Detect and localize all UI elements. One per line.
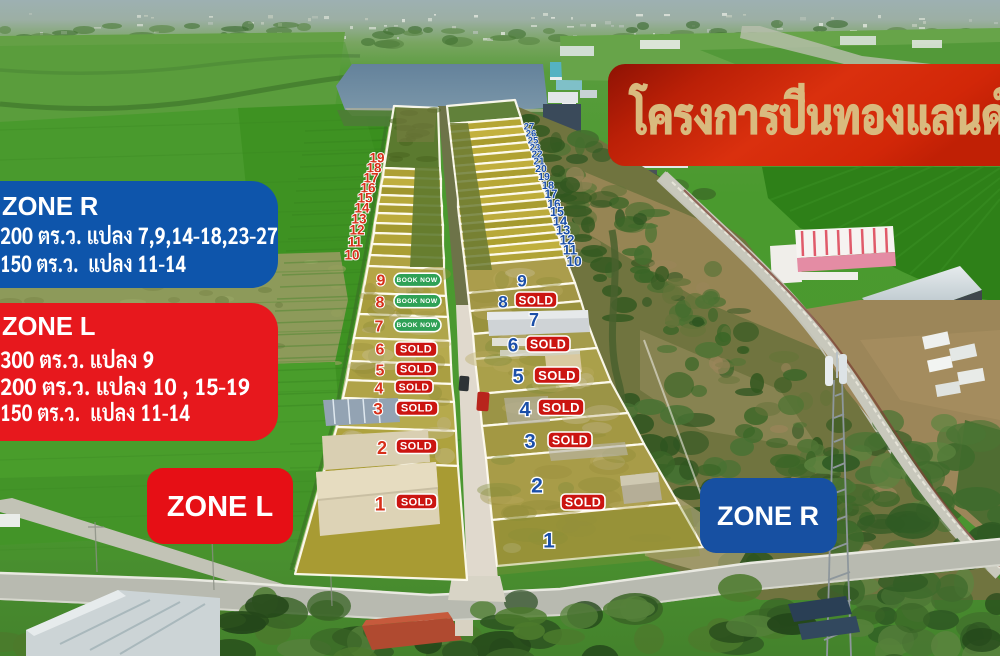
svg-text:10: 10 — [566, 253, 582, 269]
svg-text:SOLD: SOLD — [565, 496, 601, 510]
svg-text:9: 9 — [377, 273, 386, 290]
svg-text:SOLD: SOLD — [401, 403, 433, 415]
svg-text:SOLD: SOLD — [400, 364, 432, 376]
svg-text:6: 6 — [376, 342, 385, 359]
svg-text:BOOK NOW: BOOK NOW — [397, 298, 438, 305]
svg-text:SOLD: SOLD — [542, 400, 580, 415]
svg-text:2: 2 — [377, 438, 387, 458]
svg-text:5: 5 — [376, 363, 385, 380]
svg-text:ZONE R: ZONE R — [2, 193, 98, 221]
svg-text:SOLD: SOLD — [519, 294, 554, 308]
svg-text:5: 5 — [512, 366, 523, 388]
svg-text:8: 8 — [376, 295, 385, 312]
svg-text:4: 4 — [519, 399, 531, 421]
svg-text:9: 9 — [517, 272, 526, 291]
svg-text:1: 1 — [543, 530, 555, 553]
svg-text:SOLD: SOLD — [399, 382, 430, 394]
svg-text:3: 3 — [524, 431, 535, 453]
svg-text:ZONE R: ZONE R — [717, 501, 819, 531]
svg-text:4: 4 — [375, 381, 384, 398]
svg-text:ZONE L: ZONE L — [167, 491, 273, 523]
svg-text:3: 3 — [373, 400, 382, 419]
svg-text:1: 1 — [375, 495, 386, 516]
svg-text:8: 8 — [498, 293, 507, 312]
svg-text:2: 2 — [531, 475, 543, 498]
svg-text:10: 10 — [344, 248, 359, 263]
svg-text:BOOK NOW: BOOK NOW — [397, 322, 438, 329]
svg-text:6: 6 — [508, 336, 519, 357]
svg-text:SOLD: SOLD — [530, 338, 566, 352]
svg-text:SOLD: SOLD — [552, 434, 588, 448]
svg-text:BOOK NOW: BOOK NOW — [397, 277, 438, 284]
svg-text:7: 7 — [529, 310, 539, 330]
svg-text:SOLD: SOLD — [401, 497, 433, 509]
svg-text:ZONE L: ZONE L — [2, 313, 96, 341]
svg-text:SOLD: SOLD — [538, 368, 576, 383]
svg-text:SOLD: SOLD — [400, 441, 432, 453]
svg-text:SOLD: SOLD — [400, 344, 432, 356]
svg-text:7: 7 — [375, 319, 384, 336]
